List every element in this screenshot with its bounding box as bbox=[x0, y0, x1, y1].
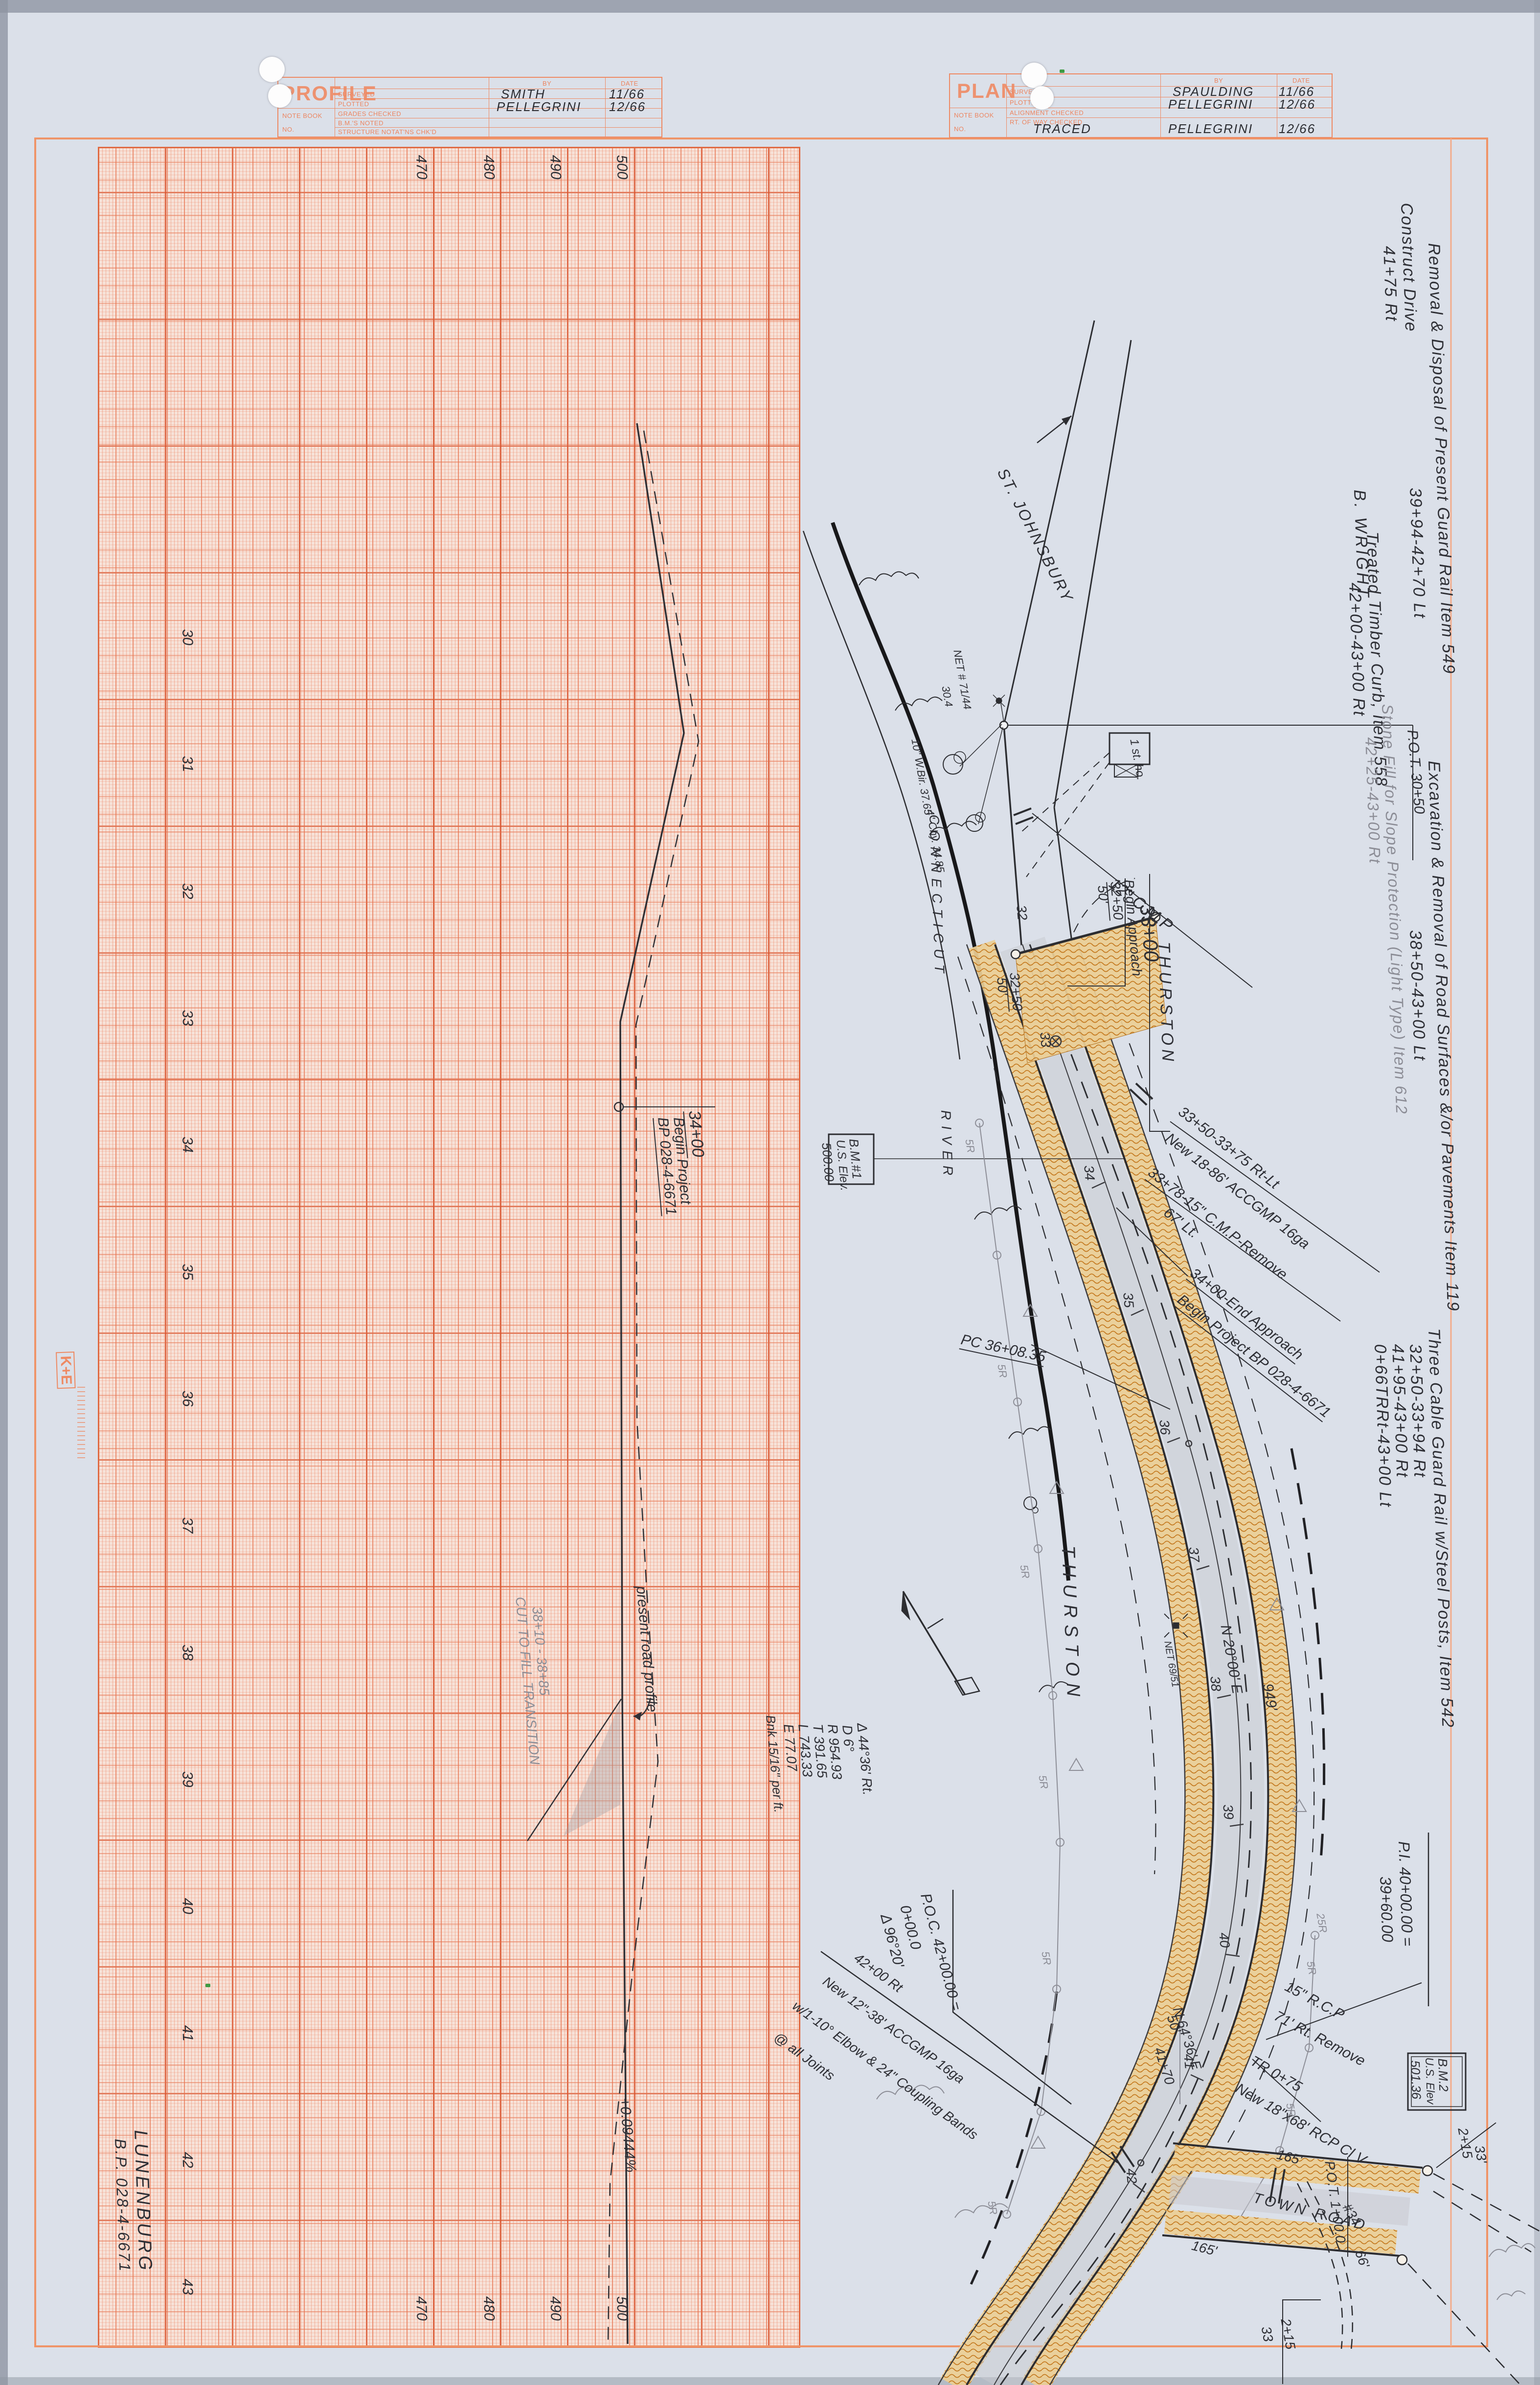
plan-station: 40 bbox=[1217, 1932, 1232, 1949]
north-arrow bbox=[902, 1591, 979, 1695]
station-number: 39 bbox=[180, 1771, 196, 1788]
station-number: 38 bbox=[180, 1644, 196, 1661]
rail-post-5r: 5R bbox=[1305, 1960, 1318, 1976]
station-number: 32 bbox=[180, 883, 196, 899]
station-number: 31 bbox=[180, 756, 196, 772]
plan-station: 37 bbox=[1186, 1546, 1202, 1563]
row-grades-checked: GRADES CHECKED bbox=[338, 110, 401, 117]
river-name-2: RIVER bbox=[939, 1110, 955, 1182]
plotted-by-entry: PELLEGRINI bbox=[497, 99, 581, 115]
rail-post-5r: 5R bbox=[996, 1363, 1009, 1379]
plan-station: 34 bbox=[1082, 1165, 1097, 1181]
elevation-label: 490 bbox=[547, 155, 564, 180]
bm1-elev: 500.00 bbox=[819, 1142, 836, 1182]
drawing-sheet: PROFILE NOTE BOOK NO. BY DATE SURVEYED P… bbox=[0, 0, 1540, 2385]
cut-shading bbox=[564, 1702, 620, 1836]
sheet-border bbox=[35, 138, 1487, 2346]
date-header: DATE bbox=[1292, 77, 1310, 84]
station-number: 33 bbox=[180, 1009, 196, 1026]
station-number: 34 bbox=[180, 1136, 196, 1153]
plan-block-title: PLAN bbox=[957, 79, 1017, 103]
flag-33: 33' bbox=[1472, 2144, 1489, 2164]
plan-station: 38 bbox=[1208, 1675, 1223, 1692]
punch-hole bbox=[268, 84, 292, 108]
by-header: BY bbox=[1214, 77, 1223, 84]
begin-approach-offset: 50' bbox=[1095, 885, 1111, 904]
station-number: 43 bbox=[180, 2278, 196, 2295]
plotted-date-entry: 12/66 bbox=[609, 99, 646, 115]
flag-33: 33 bbox=[1259, 2325, 1275, 2343]
plan-station: 33 bbox=[1038, 1032, 1053, 1048]
traced-date-entry: 12/66 bbox=[1279, 121, 1315, 137]
row-plotted: PLOTTED bbox=[338, 100, 369, 108]
elevation-label: 480 bbox=[481, 155, 497, 180]
rail-post-5r: 5R bbox=[963, 1138, 977, 1154]
elevation-label: 490 bbox=[547, 2296, 564, 2321]
note-excavation-sta: 38+50-43+00 Lt bbox=[1406, 930, 1428, 1061]
plan-title-block: PLAN NOTE BOOK NO. BY DATE SURVEYED PLOT… bbox=[949, 73, 1333, 138]
station-number: 40 bbox=[180, 1898, 196, 1914]
ke-paper-stamp: K+E bbox=[56, 1352, 76, 1389]
plotted-by-entry: PELLEGRINI bbox=[1168, 97, 1253, 112]
rail-post-5r: 5R bbox=[1040, 1950, 1053, 1966]
elevation-label: 500 bbox=[614, 155, 630, 180]
approach-station-33: 33+00 bbox=[1136, 903, 1162, 963]
row-structure: STRUCTURE NOTAT'NS CHK'D bbox=[338, 128, 436, 136]
rail-post-5r: 5R bbox=[986, 2200, 999, 2216]
plan-station: 42 bbox=[1124, 2168, 1139, 2184]
plan-station: 32 bbox=[1014, 904, 1030, 921]
row-surveyed: SURVEYED bbox=[338, 91, 375, 98]
rail-post-5r: 5R bbox=[1037, 1774, 1050, 1790]
plotted-date-entry: 12/66 bbox=[1279, 97, 1315, 112]
traced-entry: TRACED bbox=[1033, 121, 1091, 137]
punch-hole bbox=[1030, 86, 1054, 110]
bm2-elev: 501.36 bbox=[1408, 2060, 1423, 2099]
station-number: 41 bbox=[180, 2025, 196, 2041]
plan-station: 35 bbox=[1121, 1292, 1136, 1308]
green-speck bbox=[205, 1984, 210, 1987]
station-number: 30 bbox=[180, 629, 196, 645]
bm2-name: B.M.2 bbox=[1436, 2058, 1450, 2092]
bm2-datum: U.S. Elev bbox=[1424, 2057, 1437, 2105]
note-book-label: NOTE BOOK bbox=[282, 112, 322, 119]
green-speck bbox=[1060, 69, 1064, 73]
row-bms-noted: B.M.'S NOTED bbox=[338, 119, 384, 127]
station-number: 35 bbox=[180, 1263, 196, 1280]
by-header: BY bbox=[543, 80, 551, 87]
no-label: NO. bbox=[282, 126, 294, 133]
station-number: 36 bbox=[180, 1390, 196, 1407]
curve-degree: D 6° bbox=[840, 1724, 857, 1752]
rail-post-5r: 5R bbox=[1284, 2102, 1298, 2118]
row-alignment-checked: ALIGNMENT CHECKED bbox=[1010, 109, 1084, 116]
date-header: DATE bbox=[621, 80, 638, 87]
profile-title-block: PROFILE NOTE BOOK NO. BY DATE SURVEYED P… bbox=[277, 77, 662, 138]
plan-station: 36 bbox=[1157, 1419, 1173, 1436]
punch-hole bbox=[1021, 63, 1047, 88]
station-number: 42 bbox=[180, 2152, 196, 2168]
punch-hole bbox=[259, 57, 285, 82]
traced-by-entry: PELLEGRINI bbox=[1168, 121, 1253, 137]
station-number: 37 bbox=[180, 1517, 196, 1534]
elevation-label: 470 bbox=[413, 2296, 430, 2321]
note-stone-fill-sta: 42+25-43+00 Rt bbox=[1362, 737, 1383, 864]
plan-station: 41 bbox=[1181, 2053, 1197, 2070]
note-guard-rail-removal-sta: 39+94-42+70 Lt bbox=[1406, 487, 1428, 619]
plan-station: 39 bbox=[1221, 1804, 1236, 1820]
ke-stamp-fine-print bbox=[77, 1385, 85, 1458]
rail-post-5r: 5R bbox=[1018, 1564, 1032, 1580]
elevation-label: 480 bbox=[481, 2296, 497, 2321]
profile-lines bbox=[527, 423, 715, 2344]
note-construct-drive-sta: 41+75 Rt bbox=[1380, 246, 1400, 322]
note-book-label: NOTE BOOK bbox=[954, 112, 994, 119]
note-construct-drive: Construct Drive bbox=[1397, 203, 1419, 332]
elevation-label: 470 bbox=[413, 155, 430, 180]
pi-equation: P.I. 40+00.00 = bbox=[1395, 1841, 1415, 1947]
edge-offset: 50' bbox=[995, 977, 1010, 996]
pi-equation-result: 39+60.00 bbox=[1377, 1876, 1395, 1942]
elevation-label: 500 bbox=[614, 2296, 630, 2321]
no-label: NO. bbox=[954, 125, 966, 133]
